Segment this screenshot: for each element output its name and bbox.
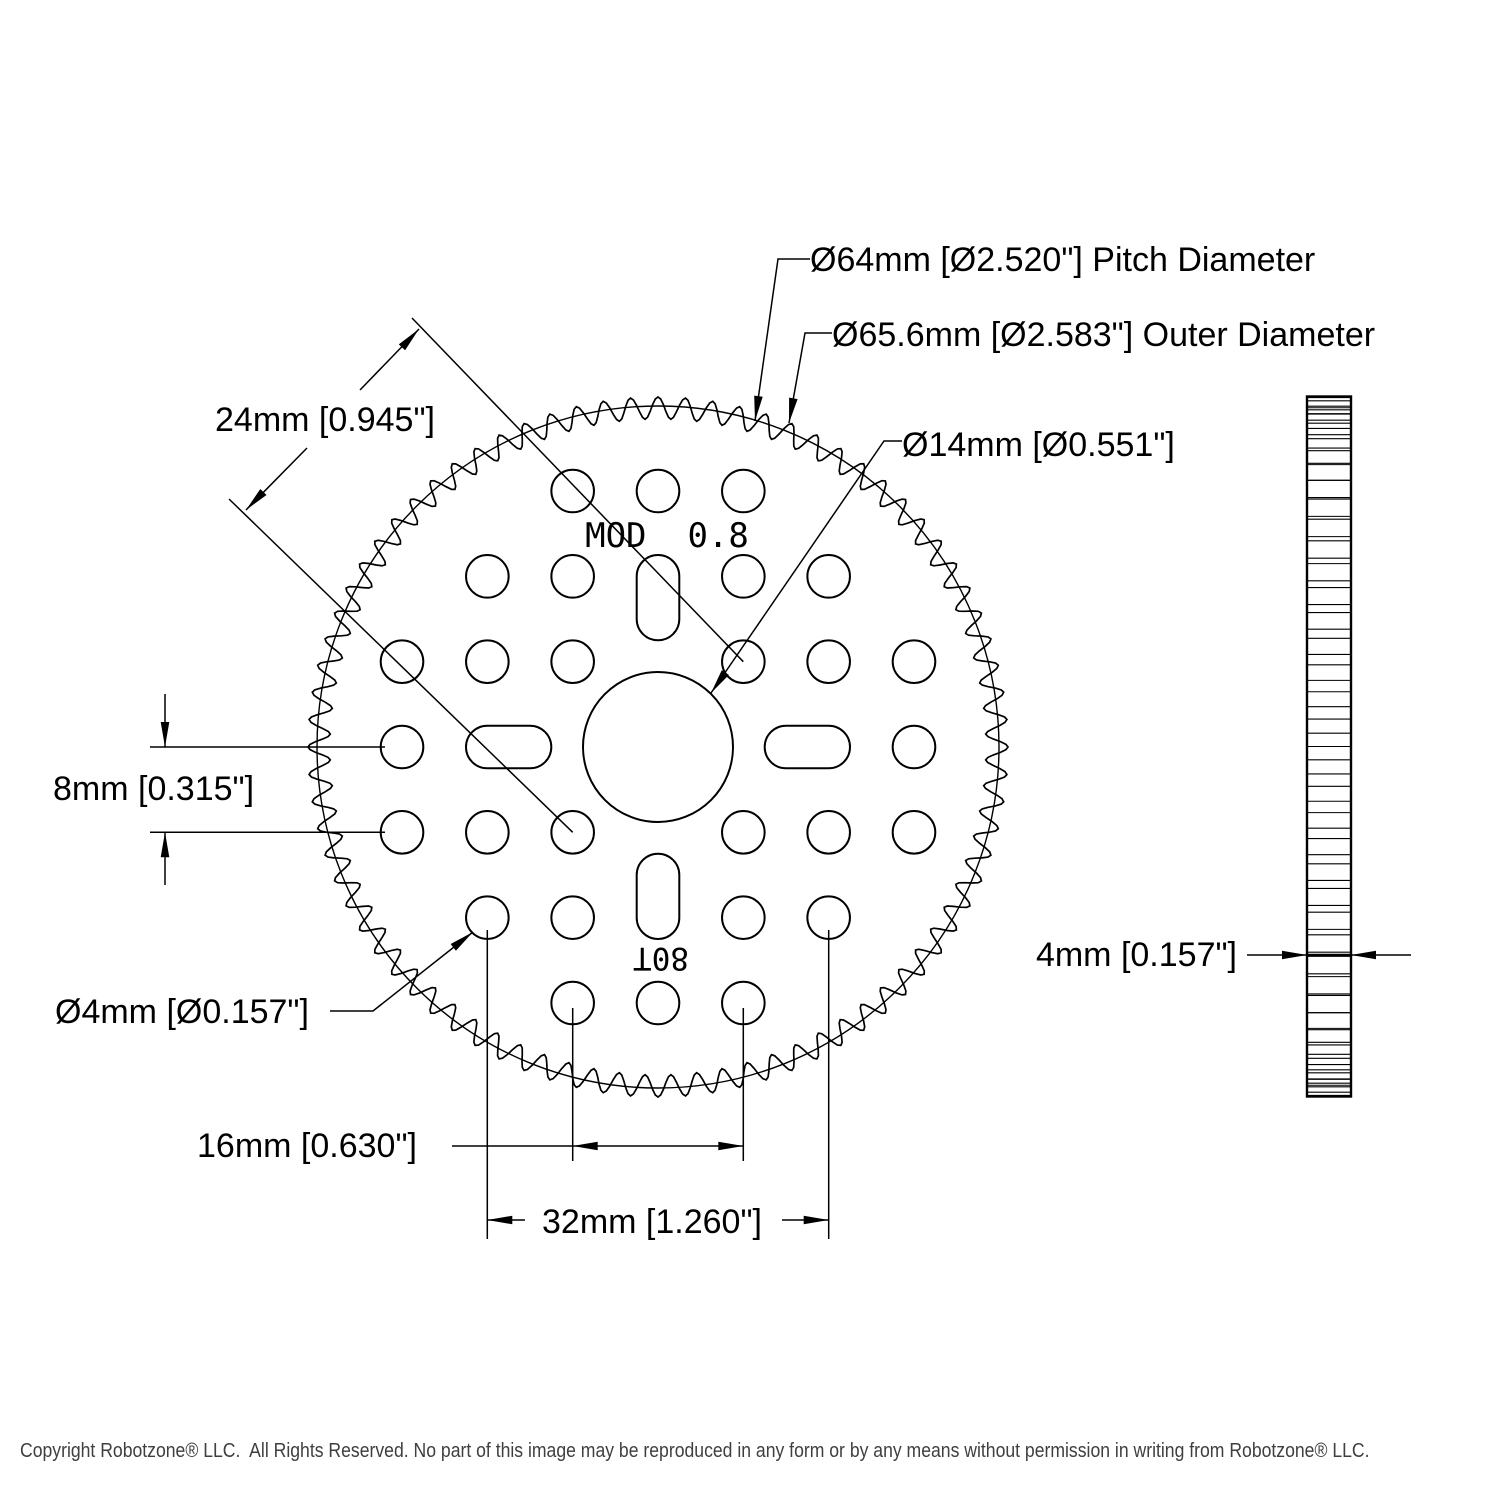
diagonal-spacing-label: 24mm [0.945"] — [215, 401, 435, 439]
mount-hole — [807, 640, 850, 683]
technical-drawing: Ø64mm [Ø2.520"] Pitch Diameter Ø65.6mm [… — [0, 0, 1500, 1500]
pitch-diameter-label: Ø64mm [Ø2.520"] Pitch Diameter — [810, 241, 1315, 279]
copyright-notice: Copyright Robotzone® LLC. All Rights Res… — [20, 1440, 1370, 1463]
mount-hole — [551, 896, 594, 939]
row-spacing-label: 8mm [0.315"] — [53, 770, 254, 808]
center-bore-circle — [583, 672, 733, 822]
arrowhead — [789, 398, 798, 423]
mount-slot — [466, 726, 551, 769]
mount-hole — [551, 555, 594, 598]
drawing-sheet: Ø64mm [Ø2.520"] Pitch Diameter Ø65.6mm [… — [0, 0, 1500, 1500]
mount-hole — [893, 726, 936, 769]
mount-hole — [381, 726, 424, 769]
mount-hole — [807, 811, 850, 854]
arrowhead — [804, 1216, 829, 1225]
arrowhead — [161, 722, 170, 747]
dimension-line — [229, 499, 573, 832]
mount-slot — [637, 555, 680, 640]
arrowhead — [1282, 951, 1307, 960]
mount-hole — [637, 470, 680, 513]
thickness-label: 4mm [0.157"] — [1036, 936, 1237, 974]
mount-hole — [722, 470, 765, 513]
leader-line — [755, 259, 810, 421]
mount-hole — [381, 811, 424, 854]
arrowhead — [718, 1142, 743, 1151]
side-view-tooth-lines — [1307, 398, 1351, 1096]
slot-pattern — [466, 555, 850, 939]
bore-diameter-label: Ø14mm [Ø0.551"] — [902, 426, 1175, 464]
arrowhead — [487, 1216, 512, 1225]
mount-hole — [466, 640, 509, 683]
arrowhead — [711, 670, 729, 693]
mount-hole — [722, 811, 765, 854]
arrowhead — [399, 329, 419, 350]
gear-teeth-outline — [308, 397, 1008, 1097]
mount-hole — [722, 555, 765, 598]
mount-hole — [381, 640, 424, 683]
mount-hole — [551, 470, 594, 513]
hole-spacing-16-label: 16mm [0.630"] — [197, 1127, 417, 1165]
arrowhead — [451, 932, 473, 951]
mount-hole — [722, 896, 765, 939]
mount-slot — [765, 726, 850, 769]
mount-hole — [466, 555, 509, 598]
hole-spacing-32-label: 32mm [1.260"] — [542, 1203, 762, 1241]
mount-slot — [637, 854, 680, 939]
arrowhead — [1351, 951, 1376, 960]
mount-hole — [637, 982, 680, 1025]
module-marking-text: MOD 0.8 — [585, 516, 749, 556]
gear-front-view — [308, 397, 1008, 1097]
dimension-line — [412, 318, 743, 662]
mount-hole — [893, 811, 936, 854]
mount-hole — [466, 811, 509, 854]
pitch-circle — [317, 406, 999, 1088]
outer-diameter-label: Ø65.6mm [Ø2.583"] Outer Diameter — [832, 316, 1375, 354]
hole-diameter-label: Ø4mm [Ø0.157"] — [55, 993, 309, 1031]
mount-hole — [551, 640, 594, 683]
tooth-count-marking-text: 80T — [633, 940, 689, 976]
leader-line — [711, 441, 902, 693]
mount-hole — [807, 555, 850, 598]
mount-hole — [893, 640, 936, 683]
leader-line — [789, 333, 832, 423]
gear-side-view — [1307, 397, 1351, 1097]
arrowhead — [573, 1142, 598, 1151]
arrowhead — [246, 489, 267, 510]
arrowhead — [161, 832, 170, 857]
